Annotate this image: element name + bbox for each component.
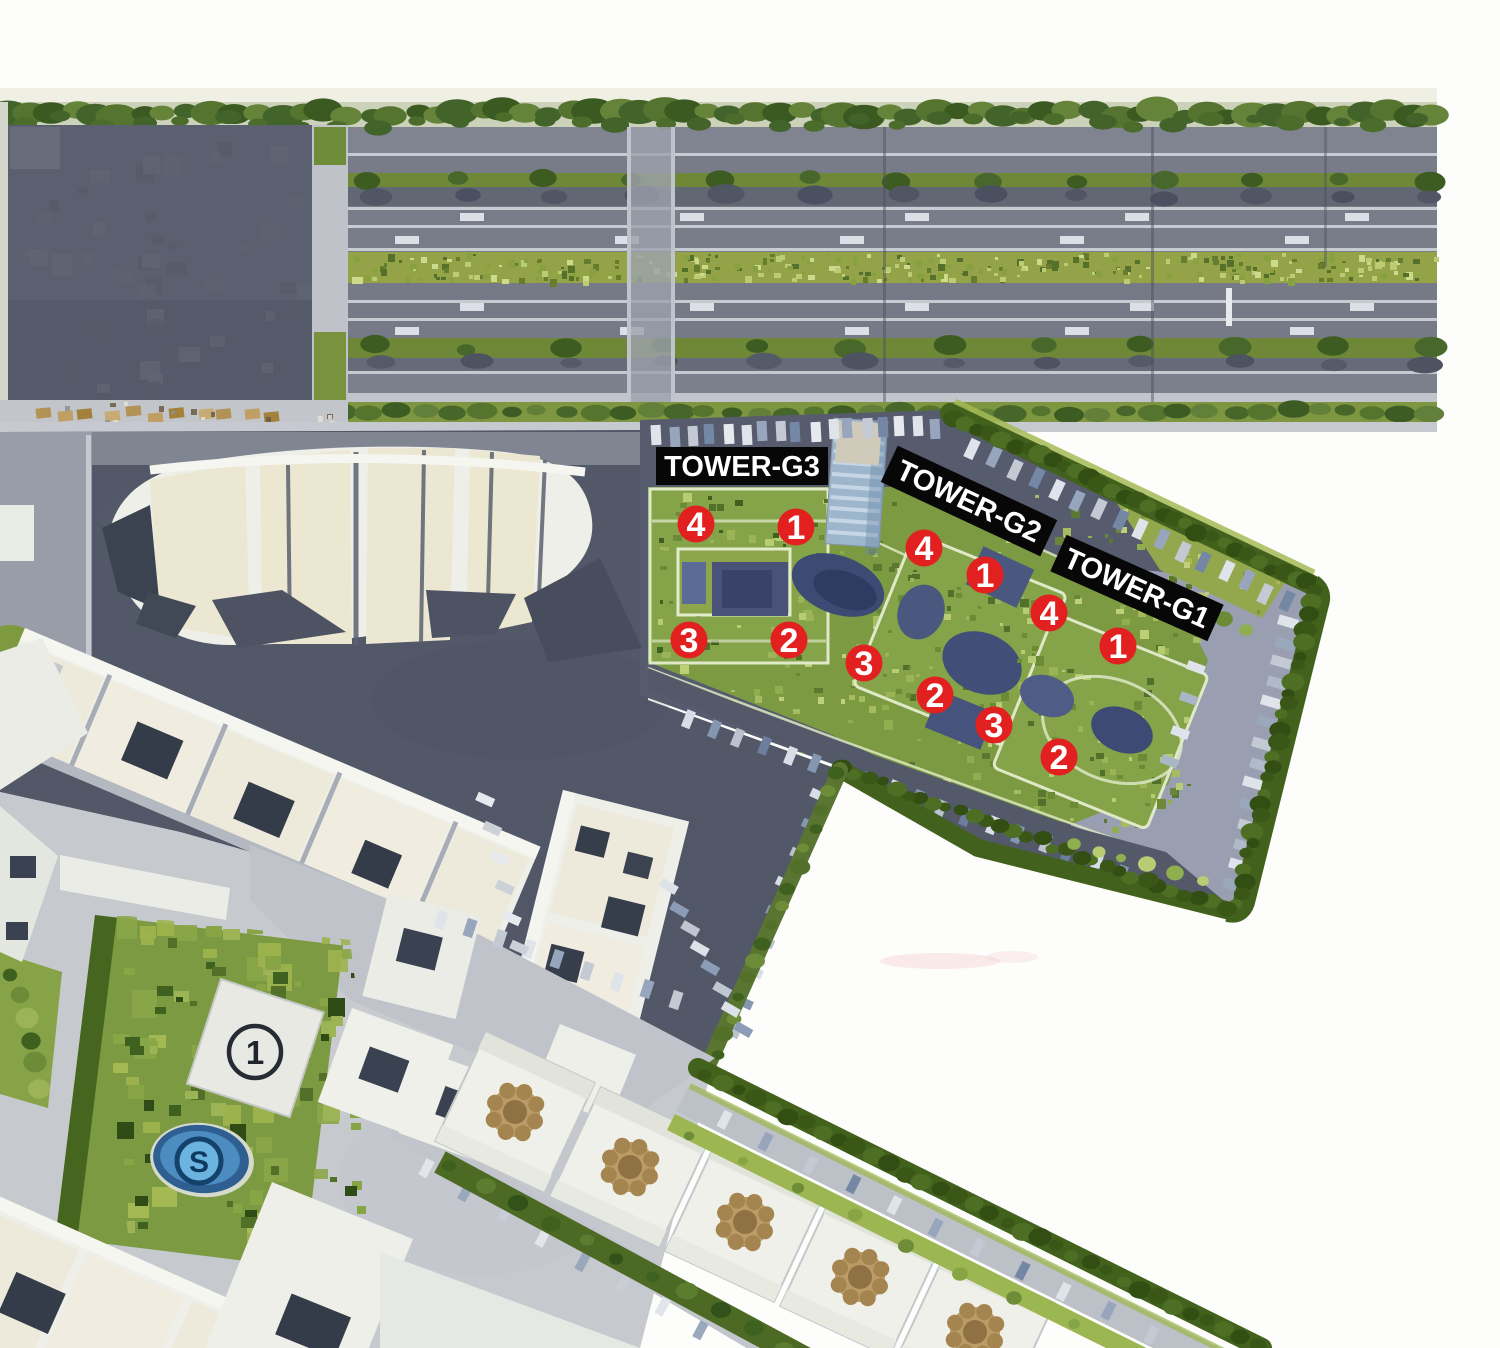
svg-text:1: 1 [1109, 628, 1128, 666]
svg-text:2: 2 [926, 677, 945, 715]
svg-text:4: 4 [915, 530, 934, 568]
svg-text:4: 4 [687, 506, 706, 544]
svg-text:1: 1 [787, 509, 806, 547]
svg-text:TOWER-G3: TOWER-G3 [664, 451, 820, 483]
svg-text:2: 2 [1050, 739, 1069, 777]
svg-text:1: 1 [246, 1034, 264, 1071]
svg-text:3: 3 [855, 645, 874, 683]
svg-text:3: 3 [680, 622, 699, 660]
svg-text:S: S [189, 1146, 209, 1179]
svg-text:1: 1 [976, 557, 995, 595]
svg-text:3: 3 [985, 707, 1004, 745]
svg-text:4: 4 [1040, 595, 1059, 633]
svg-text:2: 2 [780, 622, 799, 660]
